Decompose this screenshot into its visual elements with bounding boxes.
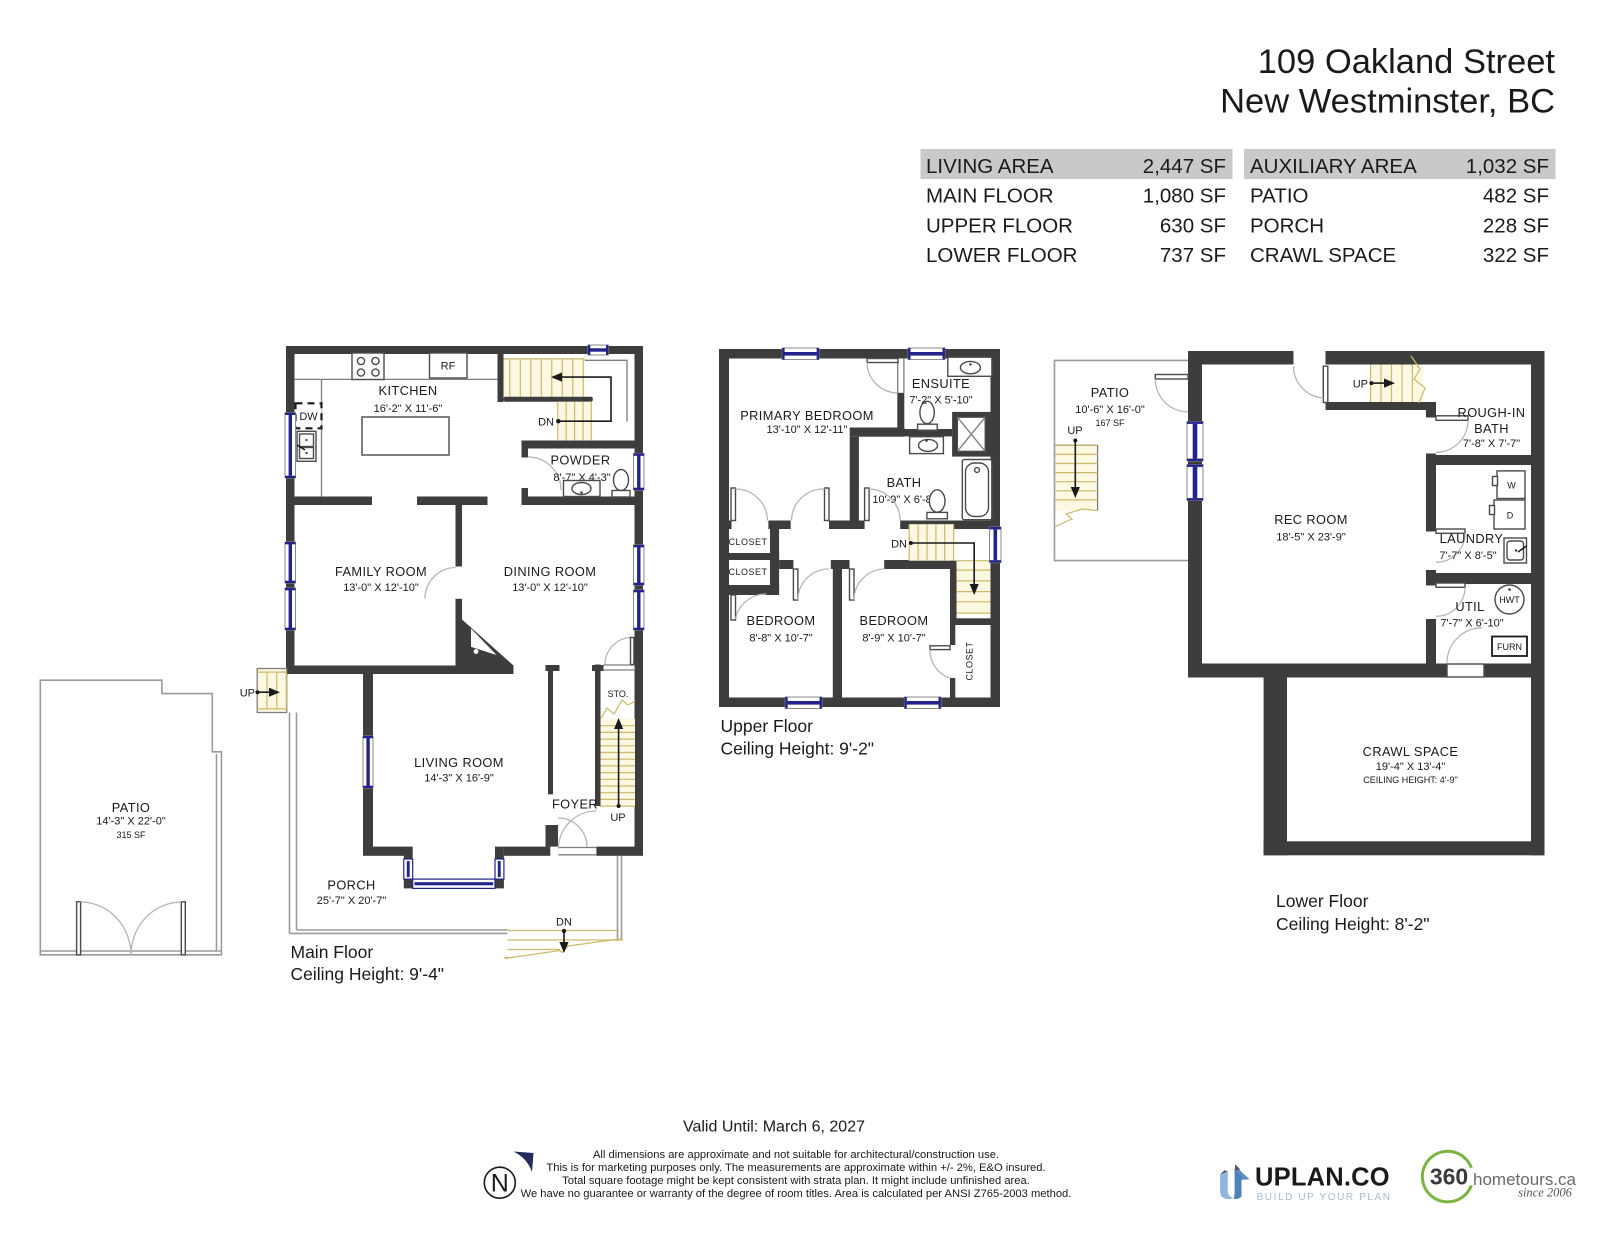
svg-text:7'-8" X 7'-7": 7'-8" X 7'-7" <box>1463 438 1520 450</box>
svg-text:UPLAN.CO: UPLAN.CO <box>1255 1163 1390 1191</box>
svg-text:UP: UP <box>1067 425 1082 437</box>
svg-text:Lower Floor: Lower Floor <box>1276 891 1369 911</box>
svg-text:BEDROOM: BEDROOM <box>747 613 816 628</box>
svg-text:Ceiling Height: 9'-2": Ceiling Height: 9'-2" <box>721 739 875 759</box>
svg-text:LIVING ROOM: LIVING ROOM <box>414 755 504 770</box>
svg-text:PATIO: PATIO <box>112 800 151 815</box>
svg-text:DW: DW <box>299 411 318 423</box>
svg-text:228 SF: 228 SF <box>1483 215 1549 238</box>
svg-text:13'-0" X 12'-10": 13'-0" X 12'-10" <box>512 582 588 594</box>
svg-text:10'-6" X 16'-0": 10'-6" X 16'-0" <box>1075 404 1145 416</box>
svg-text:CLOSET: CLOSET <box>728 567 767 577</box>
svg-text:14'-3" X 16'-9": 14'-3" X 16'-9" <box>424 773 494 785</box>
svg-text:Total square footage might be: Total square footage might be kept consi… <box>562 1175 1030 1187</box>
svg-text:322 SF: 322 SF <box>1483 244 1549 267</box>
svg-text:UPPER FLOOR: UPPER FLOOR <box>926 215 1073 238</box>
svg-text:Ceiling Height: 8'-2": Ceiling Height: 8'-2" <box>1276 914 1430 934</box>
svg-text:Valid Until: March 6, 2027: Valid Until: March 6, 2027 <box>683 1119 865 1136</box>
svg-text:630 SF: 630 SF <box>1160 215 1226 238</box>
svg-text:CRAWL SPACE: CRAWL SPACE <box>1363 744 1459 759</box>
svg-text:8'-8" X 10'-7": 8'-8" X 10'-7" <box>749 633 812 645</box>
svg-text:New Westminster, BC: New Westminster, BC <box>1220 83 1555 121</box>
svg-text:LIVING AREA: LIVING AREA <box>926 155 1054 178</box>
svg-text:All dimensions are approximate: All dimensions are approximate and not s… <box>593 1149 999 1161</box>
svg-text:This is for marketing purposes: This is for marketing purposes only. The… <box>546 1162 1045 1174</box>
svg-text:HWT: HWT <box>1499 595 1520 605</box>
svg-text:Upper Floor: Upper Floor <box>721 716 814 736</box>
svg-text:7'-7" X 8'-5": 7'-7" X 8'-5" <box>1439 550 1496 562</box>
svg-text:PRIMARY BEDROOM: PRIMARY BEDROOM <box>740 408 874 423</box>
svg-text:1,080 SF: 1,080 SF <box>1143 185 1226 208</box>
svg-text:N: N <box>491 1170 509 1198</box>
svg-text:109 Oakland Street: 109 Oakland Street <box>1258 43 1556 81</box>
svg-text:LOWER FLOOR: LOWER FLOOR <box>926 244 1078 267</box>
svg-text:We have no guarantee or warran: We have no guarantee or warranty of the … <box>521 1188 1072 1200</box>
svg-text:DN: DN <box>891 539 907 551</box>
svg-text:Main Floor: Main Floor <box>291 942 374 962</box>
svg-text:13'-10" X 12'-11": 13'-10" X 12'-11" <box>767 424 848 436</box>
svg-text:since 2006: since 2006 <box>1518 1186 1573 1200</box>
svg-text:7'-7" X 6'-10": 7'-7" X 6'-10" <box>1440 618 1503 630</box>
svg-text:315 SF: 315 SF <box>116 830 146 840</box>
svg-text:PATIO: PATIO <box>1091 385 1130 400</box>
svg-text:737 SF: 737 SF <box>1160 244 1226 267</box>
svg-text:BUILD UP YOUR PLAN: BUILD UP YOUR PLAN <box>1257 1192 1392 1203</box>
svg-text:BEDROOM: BEDROOM <box>860 613 929 628</box>
svg-text:482 SF: 482 SF <box>1483 185 1549 208</box>
svg-text:DN: DN <box>538 417 554 429</box>
svg-text:AUXILIARY AREA: AUXILIARY AREA <box>1250 155 1417 178</box>
svg-text:UP: UP <box>610 812 625 824</box>
svg-text:BATH: BATH <box>887 475 922 490</box>
svg-text:DN: DN <box>556 917 572 929</box>
svg-text:7'-2" X 5'-10": 7'-2" X 5'-10" <box>909 395 972 407</box>
svg-text:DINING ROOM: DINING ROOM <box>504 564 597 579</box>
svg-text:STO.: STO. <box>608 689 629 699</box>
svg-text:UP: UP <box>1353 379 1368 391</box>
svg-text:W: W <box>1507 481 1516 491</box>
svg-text:RF: RF <box>441 361 456 373</box>
svg-text:D: D <box>1507 511 1514 521</box>
svg-text:1,032 SF: 1,032 SF <box>1466 155 1549 178</box>
svg-text:18'-5" X 23'-9": 18'-5" X 23'-9" <box>1276 532 1346 544</box>
svg-text:PORCH: PORCH <box>327 878 375 893</box>
svg-text:BATH: BATH <box>1474 421 1509 436</box>
svg-text:10'-9" X 6'-8": 10'-9" X 6'-8" <box>872 494 935 506</box>
svg-text:ROUGH-IN: ROUGH-IN <box>1458 405 1526 420</box>
svg-text:8'-9" X 10'-7": 8'-9" X 10'-7" <box>862 633 925 645</box>
svg-text:Ceiling Height: 9'-4": Ceiling Height: 9'-4" <box>291 964 445 984</box>
svg-text:CEILING HEIGHT: 4'-9": CEILING HEIGHT: 4'-9" <box>1363 775 1457 785</box>
svg-text:MAIN FLOOR: MAIN FLOOR <box>926 185 1054 208</box>
svg-text:FOYER: FOYER <box>552 797 598 812</box>
svg-text:UTIL: UTIL <box>1455 599 1484 614</box>
svg-text:UP: UP <box>240 688 255 700</box>
svg-text:POWDER: POWDER <box>551 453 611 468</box>
svg-text:167 SF: 167 SF <box>1095 418 1125 428</box>
svg-text:PATIO: PATIO <box>1250 185 1308 208</box>
svg-text:LAUNDRY: LAUNDRY <box>1440 531 1504 546</box>
svg-text:CLOSET: CLOSET <box>965 641 975 680</box>
svg-text:CLOSET: CLOSET <box>728 537 767 547</box>
svg-text:360: 360 <box>1430 1164 1468 1190</box>
svg-text:19'-4" X 13'-4": 19'-4" X 13'-4" <box>1376 761 1446 773</box>
svg-text:2,447 SF: 2,447 SF <box>1143 155 1226 178</box>
svg-text:FURN: FURN <box>1497 642 1522 652</box>
svg-text:16'-2" X 11'-6": 16'-2" X 11'-6" <box>374 403 443 415</box>
svg-text:FAMILY ROOM: FAMILY ROOM <box>335 564 427 579</box>
svg-text:25'-7" X 20'-7": 25'-7" X 20'-7" <box>317 895 387 907</box>
svg-text:PORCH: PORCH <box>1250 215 1324 238</box>
svg-text:CRAWL SPACE: CRAWL SPACE <box>1250 244 1396 267</box>
svg-text:KITCHEN: KITCHEN <box>379 383 438 398</box>
svg-text:REC ROOM: REC ROOM <box>1274 512 1348 527</box>
svg-text:13'-0" X 12'-10": 13'-0" X 12'-10" <box>343 582 419 594</box>
svg-text:ENSUITE: ENSUITE <box>912 376 970 391</box>
svg-text:14'-3" X 22'-0": 14'-3" X 22'-0" <box>96 816 166 828</box>
